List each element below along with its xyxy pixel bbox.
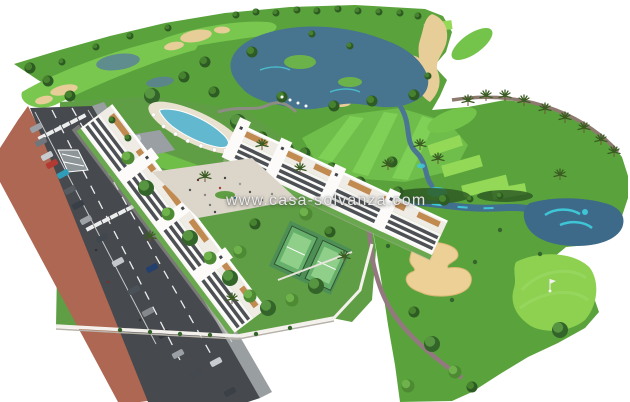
tree: [439, 195, 450, 206]
tree: [162, 208, 175, 221]
bush: [386, 244, 390, 248]
pedestrian: [139, 319, 142, 322]
bush: [498, 228, 502, 232]
tree: [552, 322, 568, 338]
golfer-dot: [549, 290, 552, 293]
teal-pond: [417, 164, 425, 169]
tree: [467, 196, 474, 203]
bush: [254, 332, 258, 336]
tree: [409, 307, 420, 318]
tree: [244, 290, 257, 303]
lake-island: [284, 55, 316, 69]
tree: [247, 47, 258, 58]
tree: [286, 294, 299, 307]
tree: [376, 9, 383, 16]
tree: [59, 59, 66, 66]
bush: [288, 326, 292, 330]
tree: [294, 7, 301, 14]
tree: [109, 117, 116, 124]
tree: [424, 336, 440, 352]
bush: [450, 298, 454, 302]
tree: [325, 227, 336, 238]
tree: [43, 76, 54, 87]
tree: [233, 12, 240, 19]
tree: [165, 25, 172, 32]
tree: [122, 152, 135, 165]
tree: [314, 8, 321, 15]
tree: [182, 230, 198, 246]
tree: [308, 278, 324, 294]
tree: [234, 246, 247, 259]
tree: [179, 72, 190, 83]
tree: [250, 219, 261, 230]
tree: [222, 270, 238, 286]
tree: [125, 135, 132, 142]
tree: [138, 180, 154, 196]
tree: [355, 8, 362, 15]
tree: [402, 380, 415, 393]
tree: [144, 88, 160, 104]
bush: [148, 330, 152, 334]
tree: [335, 6, 342, 13]
tree: [347, 43, 354, 50]
fairway: [447, 22, 498, 66]
tree: [200, 57, 211, 68]
plaza-planter: [215, 191, 235, 199]
tree: [65, 91, 76, 102]
tree: [309, 31, 316, 38]
bunker: [214, 27, 230, 34]
tree-cluster: [477, 190, 533, 202]
tree: [415, 13, 422, 20]
pedestrian: [95, 249, 98, 252]
tree: [273, 10, 280, 17]
lake-island: [338, 77, 362, 87]
resort-render-image: www.casa-solvanza.com: [0, 0, 630, 402]
bush: [538, 252, 542, 256]
bush: [208, 333, 212, 337]
tree: [409, 90, 420, 101]
right-lake-sparkle: [582, 209, 588, 215]
tree: [449, 366, 462, 379]
tree: [497, 193, 504, 200]
tree: [209, 87, 220, 98]
bush: [118, 328, 122, 332]
tree: [367, 96, 378, 107]
putting-green: [513, 254, 597, 330]
resort-scene: [0, 0, 630, 402]
tree: [300, 208, 313, 221]
tree: [397, 10, 404, 17]
bush: [178, 332, 182, 336]
tree: [260, 300, 276, 316]
bush: [473, 260, 477, 264]
tree: [467, 382, 478, 393]
tree: [127, 33, 134, 40]
tree: [253, 9, 260, 16]
tree: [93, 44, 100, 51]
pedestrian: [107, 281, 110, 284]
tree: [425, 73, 432, 80]
tree: [204, 252, 217, 265]
tree: [25, 63, 36, 74]
tree: [329, 101, 340, 112]
